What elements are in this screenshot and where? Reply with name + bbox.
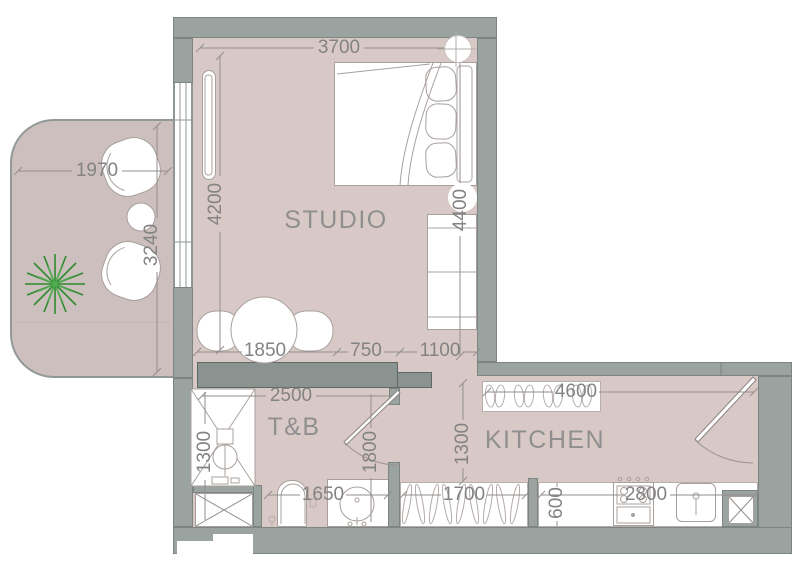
dim-corridor-depth: 1300 <box>452 404 474 484</box>
wall-bottom-notch <box>177 541 253 554</box>
dim-tb-door-side: 1800 <box>360 412 382 492</box>
floor-plan: STUDIO T&B KITCHEN 3700 1970 3240 4200 4… <box>0 0 800 579</box>
dim-dining-zone: 1850 <box>225 340 305 362</box>
dim-balcony-depth: 3240 <box>141 205 163 285</box>
wardrobe-pillar <box>528 478 538 527</box>
dim-counter-depth: 600 <box>546 463 568 543</box>
dim-studio-depth-left: 4200 <box>205 164 227 244</box>
wall-left-upper <box>173 38 193 83</box>
tb-right-pillar <box>388 462 400 527</box>
dim-studio-width: 3700 <box>299 37 379 59</box>
wall-left-lower <box>173 287 193 378</box>
dim-walkway: 750 <box>326 340 406 362</box>
dim-wardrobe-width: 1700 <box>424 484 504 506</box>
shaft-right <box>728 496 754 524</box>
dim-sofa-zone: 1100 <box>400 340 480 362</box>
dim-shower-depth: 1300 <box>194 412 216 492</box>
dim-counter-run: 2800 <box>606 484 686 506</box>
balcony-window <box>173 83 193 287</box>
room-label-studio: STUDIO <box>256 205 416 235</box>
shaft-left <box>195 493 253 527</box>
tb-door-stub <box>389 388 400 405</box>
dim-tb-width: 2500 <box>251 385 331 407</box>
wall-bottom-notch-step <box>213 534 253 541</box>
wall-top <box>173 17 497 38</box>
room-label-kitchen: KITCHEN <box>465 425 625 455</box>
wall-tb-left <box>173 378 193 527</box>
bed <box>334 62 477 186</box>
shaft-sliver-right <box>253 485 262 527</box>
partition-step <box>397 372 432 388</box>
wall-kitchen-top <box>477 362 792 376</box>
dim-junction-bubble-icon <box>444 35 472 63</box>
dim-balcony-width: 1970 <box>57 160 137 182</box>
wall-studio-right <box>477 38 497 362</box>
wall-bottom <box>173 527 792 554</box>
dim-studio-depth-right: 4400 <box>450 170 472 250</box>
dim-tb-counter: 1650 <box>283 484 363 506</box>
dim-kitchen-width: 4600 <box>536 381 616 403</box>
room-label-tb: T&B <box>214 412 374 442</box>
